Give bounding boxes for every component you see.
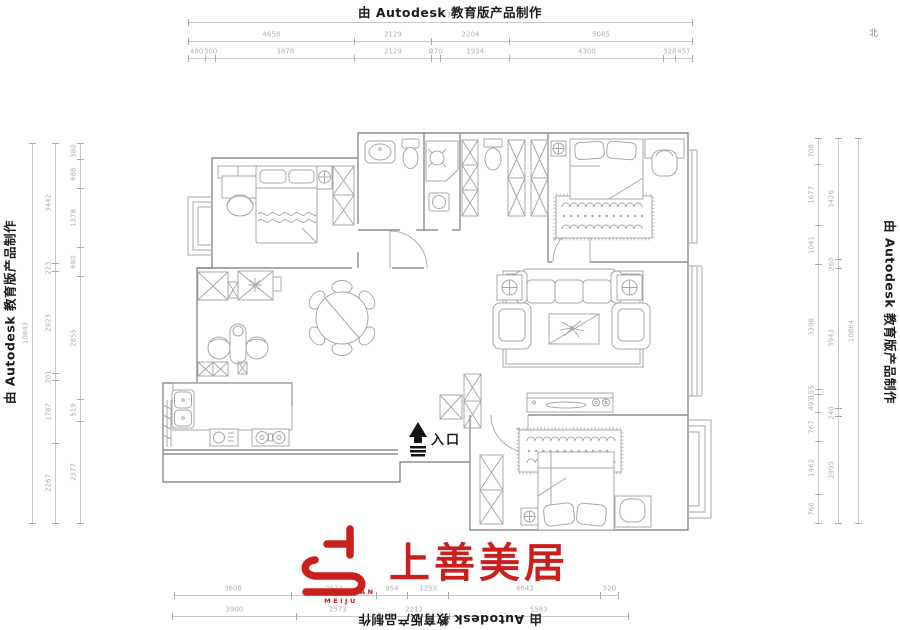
dining-area (306, 281, 378, 356)
logo-name-en-top: SHANGSHAN (306, 588, 375, 596)
bedroom-topleft (218, 166, 354, 243)
logo-name-en-bottom: MEIJU (324, 597, 358, 605)
autodesk-watermark-bottom: 由 Autodesk 教育版产品制作 (358, 611, 542, 630)
living-room (493, 269, 650, 412)
entrance-arrow (409, 422, 427, 457)
entrance-label: 入口 (431, 429, 461, 448)
autodesk-watermark-right: 由 Autodesk 教育版产品制作 (882, 220, 900, 404)
autodesk-watermark-top: 由 Autodesk 教育版产品制作 (358, 2, 542, 21)
study-nook (208, 324, 268, 364)
bathroom-2 (426, 141, 458, 211)
bathroom-1 (365, 139, 419, 169)
master-bedroom (551, 139, 684, 238)
hall-closets (462, 139, 548, 216)
kitchen (172, 383, 292, 446)
north-indicator: 北 (869, 26, 878, 39)
floorplan-sheet: 由 Autodesk 教育版产品制作 由 Autodesk 教育版产品制作 由 … (0, 0, 900, 630)
logo-name-cn: 上善美居 (389, 541, 569, 586)
autodesk-watermark-left: 由 Autodesk 教育版产品制作 (0, 220, 19, 404)
floor-plan (0, 0, 900, 630)
